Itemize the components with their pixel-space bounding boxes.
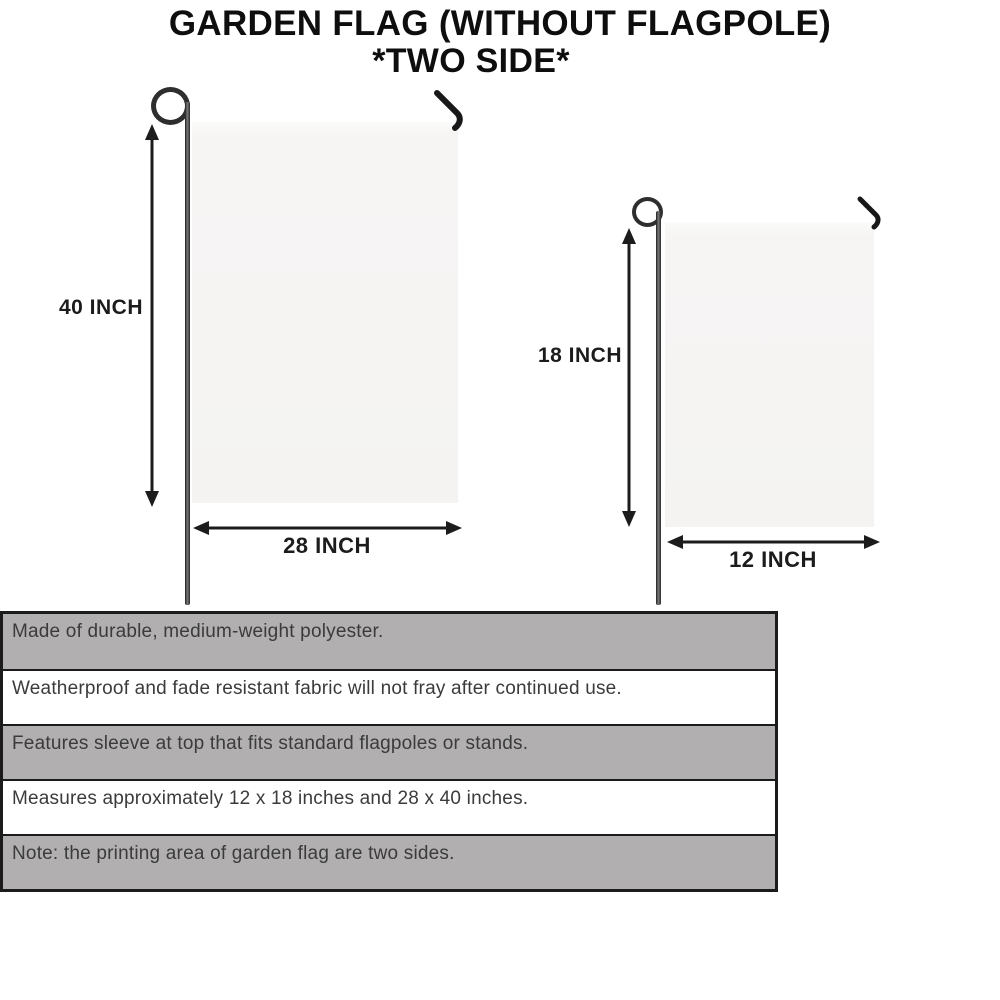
small-flag [665, 222, 874, 527]
garden-flag-infographic: GARDEN FLAG (WITHOUT FLAGPOLE) *TWO SIDE… [0, 0, 1000, 1000]
feature-row: Measures approximately 12 x 18 inches an… [3, 779, 775, 834]
arrowhead-right-icon [446, 521, 462, 535]
title-block: GARDEN FLAG (WITHOUT FLAGPOLE) *TWO SIDE… [0, 5, 1000, 80]
flagpole-large [185, 102, 190, 605]
flagpole-small [656, 211, 661, 605]
arrowhead-down-icon [145, 491, 159, 507]
height-dimension-arrow-small [622, 228, 636, 527]
height-label-small: 18 INCH [505, 344, 655, 368]
flagpole-hook-icon [431, 88, 469, 138]
feature-row: Features sleeve at top that fits standar… [3, 724, 775, 779]
flagpole-hook-icon [855, 195, 887, 235]
features-table: Made of durable, medium-weight polyester… [0, 611, 778, 892]
arrowhead-down-icon [622, 511, 636, 527]
arrow-shaft [206, 527, 449, 530]
page-title: GARDEN FLAG (WITHOUT FLAGPOLE) [0, 5, 1000, 43]
arrow-shaft [628, 241, 631, 514]
feature-row: Note: the printing area of garden flag a… [3, 834, 775, 889]
page-subtitle: *TWO SIDE* [0, 43, 971, 80]
feature-text: Made of durable, medium-weight polyester… [12, 621, 384, 642]
feature-row: Weatherproof and fade resistant fabric w… [3, 669, 775, 724]
width-label-large: 28 INCH [227, 533, 427, 559]
feature-text: Features sleeve at top that fits standar… [12, 733, 528, 754]
feature-text: Note: the printing area of garden flag a… [12, 843, 455, 864]
large-flag [192, 122, 458, 503]
feature-text: Weatherproof and fade resistant fabric w… [12, 678, 622, 699]
width-label-small: 12 INCH [673, 547, 873, 573]
feature-row: Made of durable, medium-weight polyester… [3, 614, 775, 669]
arrow-shaft [680, 541, 867, 544]
height-label-large: 40 INCH [26, 296, 176, 320]
feature-text: Measures approximately 12 x 18 inches an… [12, 788, 528, 809]
